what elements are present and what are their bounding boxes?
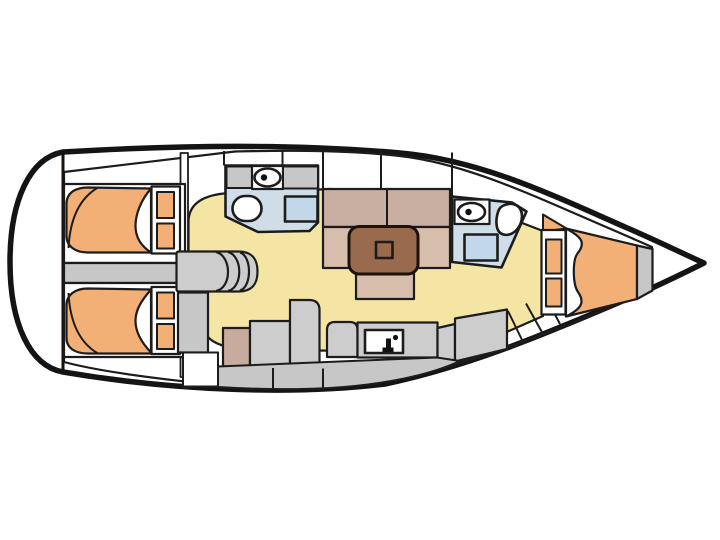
- toilet-drain-icon: [261, 174, 267, 180]
- head-cabinet: [283, 167, 318, 189]
- aft-cabin-port: [64, 184, 185, 263]
- head-cabinet: [227, 167, 253, 189]
- shower-tray: [285, 197, 318, 222]
- floor-plan-canvas: [0, 0, 720, 540]
- faucet-base: [383, 348, 394, 353]
- table-inlay: [376, 242, 393, 258]
- berth-step: [157, 192, 174, 218]
- galley-unit-rounded: [327, 322, 358, 357]
- aft-head: [226, 166, 319, 233]
- galley-end-unit: [438, 324, 456, 361]
- galley-unit: [250, 321, 290, 367]
- faucet-knob: [393, 335, 398, 340]
- berth-step: [546, 240, 562, 274]
- toilet-drain-icon: [465, 209, 471, 215]
- yacht-layout-diagram: [0, 0, 720, 540]
- aft-cabin-starboard: [64, 283, 185, 357]
- starboard-seat-unit: [455, 310, 507, 362]
- berth-step: [546, 279, 562, 307]
- toilet-icon: [255, 169, 281, 187]
- berth-step: [157, 293, 174, 319]
- engine-compartment: [64, 263, 177, 283]
- floor-niche: [183, 353, 218, 387]
- companionway-stairs: [177, 252, 258, 292]
- berth-step: [157, 324, 174, 349]
- galley-fridge: [290, 300, 320, 367]
- galley-unit-tan: [223, 328, 250, 367]
- bow-bulkhead-band: [637, 246, 653, 300]
- washbasin-icon: [233, 196, 262, 221]
- berth-step: [157, 224, 174, 249]
- shower-tray: [465, 235, 498, 261]
- galley-cabinet: [178, 293, 208, 353]
